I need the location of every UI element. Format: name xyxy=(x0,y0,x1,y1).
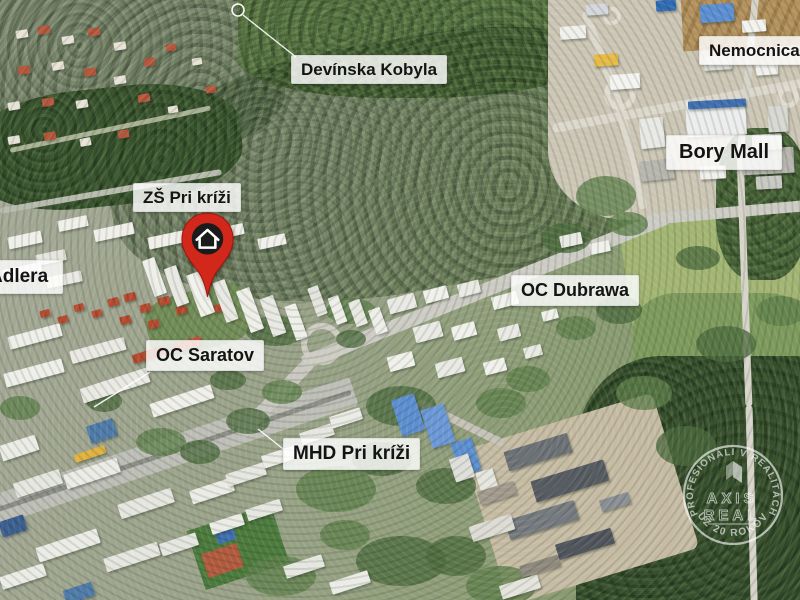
tree-cluster xyxy=(676,246,720,270)
map-building xyxy=(236,287,264,333)
map-building xyxy=(451,321,478,341)
map-building xyxy=(209,513,245,535)
tree-cluster xyxy=(320,520,370,550)
watermark-logo-line1: AXIS xyxy=(706,490,757,507)
map-building xyxy=(504,433,573,471)
map-building xyxy=(117,488,175,520)
map-building xyxy=(523,344,543,359)
map-building xyxy=(142,257,167,297)
map-building xyxy=(7,231,43,250)
map-building xyxy=(541,308,559,322)
tree-cluster xyxy=(616,376,672,410)
map-building xyxy=(435,357,466,379)
map-building xyxy=(420,403,455,448)
tree-cluster xyxy=(556,316,596,340)
map-building xyxy=(69,337,126,364)
roundabout xyxy=(777,86,799,108)
map-building xyxy=(57,215,89,232)
map-building xyxy=(93,222,135,242)
map-building xyxy=(75,99,88,109)
map-building xyxy=(7,135,20,145)
map-building xyxy=(147,319,160,330)
tree-cluster xyxy=(0,396,40,420)
map-label-bory-mall: Bory Mall xyxy=(666,135,782,170)
tree-cluster xyxy=(696,326,756,362)
map-building xyxy=(191,57,202,66)
map-label-oc-dubrawa: OC Dubrawa xyxy=(511,275,639,306)
map-building xyxy=(225,462,267,487)
map-building xyxy=(0,435,40,462)
map-building xyxy=(143,57,155,67)
map-building xyxy=(742,19,767,33)
map-building xyxy=(610,73,641,90)
map-building xyxy=(3,358,65,387)
map-building xyxy=(7,101,20,111)
map-building xyxy=(61,35,74,45)
map-building xyxy=(41,97,54,107)
tree-cluster xyxy=(476,388,526,418)
map-building xyxy=(165,43,176,52)
map-road xyxy=(552,78,800,133)
watermark-logo-line2: REAL xyxy=(704,507,761,524)
map-label-adlera: Adlera xyxy=(0,260,63,294)
tree-cluster xyxy=(136,428,186,456)
map-building xyxy=(86,418,118,444)
axis-real-diamond-logo xyxy=(726,461,742,483)
map-building xyxy=(257,233,287,250)
map-building xyxy=(51,61,64,71)
map-building xyxy=(119,315,132,326)
roundabout xyxy=(301,323,343,365)
map-label-oc-saratov: OC Saratov xyxy=(146,340,264,371)
map-building xyxy=(39,309,50,318)
map-building xyxy=(205,85,216,94)
map-building xyxy=(37,25,50,35)
map-building xyxy=(599,492,631,512)
axis-real-watermark: PROFESIONÁLI V REALITÁCH UŽ 20 ROKOV AXI… xyxy=(672,434,794,556)
map-building xyxy=(15,29,28,39)
map-building xyxy=(123,292,137,303)
map-building xyxy=(483,357,508,375)
map-building xyxy=(149,384,214,417)
map-label-mhd-pri-krizi: MHD Pri kríži xyxy=(283,438,420,470)
map-building xyxy=(594,53,619,67)
tree-cluster xyxy=(210,370,246,390)
property-location-pin xyxy=(179,211,236,300)
tree-cluster xyxy=(226,408,270,434)
map-building xyxy=(560,25,587,40)
map-building xyxy=(756,175,783,189)
map-road xyxy=(737,151,753,406)
map-building xyxy=(35,528,101,562)
map-building xyxy=(555,528,615,560)
map-building xyxy=(113,75,126,85)
map-building xyxy=(699,3,734,23)
map-building xyxy=(107,297,120,308)
tree-cluster xyxy=(336,330,366,348)
map-building xyxy=(157,296,171,307)
map-label-zs-pri-krizi: ZŠ Pri kríži xyxy=(133,183,241,212)
map-building xyxy=(113,41,126,51)
aerial-map: Devínska Kobyla Nemocnica Bory Bory Mall… xyxy=(0,0,800,600)
map-building xyxy=(117,129,129,139)
map-building xyxy=(656,0,677,12)
map-building xyxy=(91,309,102,318)
map-building xyxy=(0,563,47,590)
map-building xyxy=(586,3,609,16)
map-building xyxy=(7,323,63,350)
map-building xyxy=(329,570,371,595)
tree-cluster xyxy=(506,366,550,392)
map-building xyxy=(17,65,30,75)
map-road xyxy=(648,200,800,225)
map-building xyxy=(638,117,665,149)
map-building xyxy=(530,459,609,502)
map-building xyxy=(83,67,96,77)
map-building xyxy=(767,105,788,132)
tree-cluster xyxy=(756,296,800,326)
map-building xyxy=(137,93,150,103)
map-building xyxy=(497,323,522,341)
map-building xyxy=(87,27,100,37)
map-building xyxy=(505,500,580,540)
map-building xyxy=(63,582,96,600)
map-building xyxy=(387,351,416,372)
tree-cluster xyxy=(180,440,220,464)
map-building xyxy=(79,137,91,147)
tree-cluster xyxy=(262,380,302,404)
map-building xyxy=(103,542,161,573)
map-building xyxy=(756,63,779,76)
map-building xyxy=(469,514,516,542)
map-road xyxy=(9,105,211,153)
map-building xyxy=(519,554,561,577)
map-building xyxy=(307,285,328,317)
map-label-devinska-kobyla: Devínska Kobyla xyxy=(291,55,447,84)
tree-cluster xyxy=(608,212,648,236)
map-label-nemocnica-bory: Nemocnica Bory xyxy=(699,36,800,65)
map-building xyxy=(139,303,152,314)
map-building xyxy=(245,499,283,522)
tree-cluster xyxy=(576,176,636,216)
map-building xyxy=(73,303,84,312)
map-building xyxy=(159,532,199,556)
